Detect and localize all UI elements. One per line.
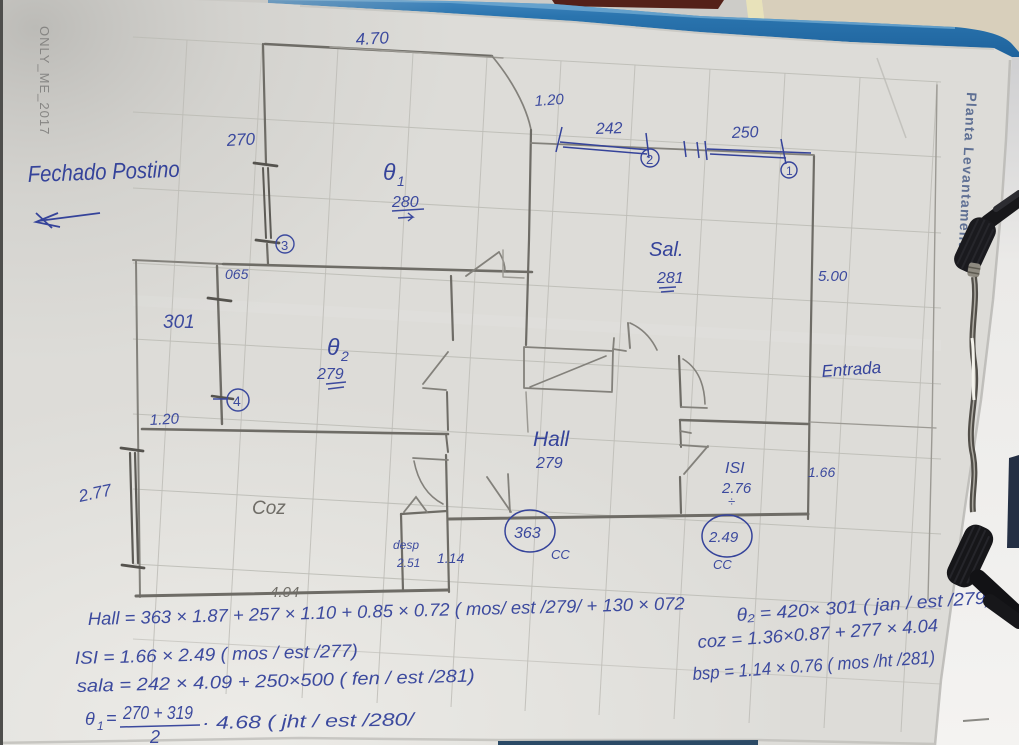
svg-text:2.51: 2.51: [396, 556, 420, 570]
svg-text:2.49: 2.49: [708, 529, 739, 546]
svg-text:÷: ÷: [728, 494, 735, 509]
svg-text:Coz: Coz: [252, 498, 286, 519]
svg-text:· 4.68 ( jht / est /280/: · 4.68 ( jht / est /280/: [202, 709, 417, 733]
svg-text:θ: θ: [383, 159, 396, 185]
svg-text:280: 280: [391, 194, 419, 211]
svg-text:5.00: 5.00: [818, 268, 848, 285]
svg-text:Fechado Postino: Fechado Postino: [27, 156, 180, 187]
svg-text:1.14: 1.14: [437, 550, 464, 566]
svg-text:Sal.: Sal.: [649, 239, 683, 261]
svg-text:2: 2: [149, 727, 160, 745]
svg-text:281: 281: [656, 270, 684, 287]
svg-text:1: 1: [397, 173, 405, 189]
svg-text:270: 270: [225, 130, 256, 151]
svg-text:242: 242: [595, 120, 623, 138]
svg-text:1: 1: [786, 164, 793, 178]
svg-text:250: 250: [731, 124, 759, 142]
svg-text:270 + 319: 270 + 319: [122, 703, 193, 723]
svg-text:3: 3: [281, 238, 288, 253]
svg-text:θ: θ: [85, 709, 95, 729]
svg-text:363: 363: [514, 525, 541, 542]
svg-text:CC: CC: [713, 557, 732, 572]
svg-text:CC: CC: [551, 547, 570, 562]
svg-text:2.76: 2.76: [721, 480, 752, 497]
svg-text:1.20: 1.20: [149, 410, 180, 429]
svg-text:=: =: [106, 708, 117, 728]
svg-text:4: 4: [233, 393, 241, 409]
svg-text:1.66: 1.66: [808, 464, 835, 480]
svg-text:desp: desp: [393, 538, 419, 552]
svg-text:065: 065: [225, 266, 249, 282]
svg-text:θ: θ: [327, 334, 340, 360]
svg-text:1: 1: [97, 719, 104, 733]
svg-text:279: 279: [535, 455, 563, 472]
svg-text:ONLY_ME_2017: ONLY_ME_2017: [37, 26, 52, 135]
svg-text:4.04: 4.04: [270, 584, 299, 601]
svg-text:279: 279: [316, 366, 344, 383]
svg-text:301: 301: [163, 312, 195, 333]
svg-text:2: 2: [340, 348, 349, 364]
svg-text:4.70: 4.70: [355, 28, 390, 49]
svg-text:1.20: 1.20: [534, 91, 565, 110]
svg-text:Hall: Hall: [533, 428, 571, 451]
svg-text:ISI: ISI: [725, 460, 745, 477]
svg-text:2: 2: [646, 152, 653, 167]
